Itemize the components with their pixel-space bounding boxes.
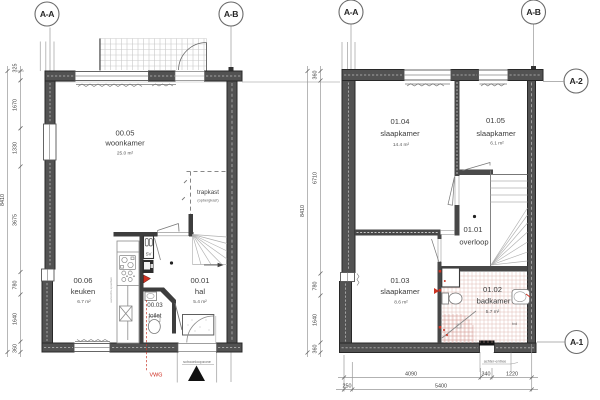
svg-text:aanrecht+spoelbak: aanrecht+spoelbak [109, 277, 113, 303]
svg-text:1640: 1640 [13, 313, 19, 325]
svg-text:360: 360 [13, 344, 19, 353]
svg-text:slaapkamer: slaapkamer [476, 129, 516, 138]
svg-text:8410: 8410 [300, 205, 306, 217]
svg-text:A-B: A-B [224, 9, 238, 19]
svg-text:780: 780 [313, 282, 319, 291]
svg-text:SV: SV [146, 252, 152, 257]
svg-text:00.06: 00.06 [73, 276, 92, 285]
svg-text:8410: 8410 [0, 194, 6, 206]
svg-text:1640: 1640 [313, 314, 319, 326]
svg-text:01.03: 01.03 [390, 276, 409, 285]
svg-text:tvd: tvd [512, 322, 517, 326]
svg-text:6.1 m²: 6.1 m² [490, 141, 504, 147]
svg-text:780: 780 [13, 281, 19, 290]
svg-text:A-2: A-2 [570, 76, 583, 86]
svg-text:00.03: 00.03 [147, 302, 163, 309]
svg-text:360: 360 [313, 71, 319, 80]
svg-text:A-A: A-A [40, 9, 54, 19]
svg-text:schoonloopzone: schoonloopzone [183, 360, 211, 364]
svg-text:14.4 m²: 14.4 m² [393, 142, 410, 148]
svg-text:(opbergkast): (opbergkast) [197, 199, 219, 203]
svg-text:340: 340 [482, 372, 491, 378]
svg-text:5.4 m²: 5.4 m² [193, 299, 207, 305]
svg-text:A-1: A-1 [570, 337, 583, 347]
svg-text:badkamer: badkamer [477, 297, 511, 306]
svg-text:8.6 m²: 8.6 m² [394, 300, 408, 306]
svg-text:01.01: 01.01 [463, 225, 482, 234]
svg-text:1330: 1330 [13, 142, 19, 154]
svg-text:trapkast: trapkast [197, 189, 219, 196]
svg-text:woonkamer: woonkamer [104, 139, 145, 148]
svg-text:keuken: keuken [71, 287, 96, 296]
svg-text:slaapkamer: slaapkamer [380, 287, 420, 296]
svg-text:toilet: toilet [148, 313, 161, 320]
svg-text:A-A: A-A [344, 7, 358, 17]
svg-text:1220: 1220 [506, 372, 518, 378]
svg-text:A-B: A-B [526, 7, 540, 17]
svg-text:250: 250 [343, 384, 352, 390]
svg-text:3675: 3675 [13, 214, 19, 226]
svg-text:00.01: 00.01 [190, 276, 209, 285]
svg-text:overloop: overloop [459, 238, 488, 247]
svg-text:01.02: 01.02 [483, 285, 502, 294]
svg-text:hal: hal [195, 287, 205, 296]
svg-text:00.05: 00.05 [115, 129, 134, 138]
svg-text:5400: 5400 [435, 384, 447, 390]
svg-text:325: 325 [13, 64, 19, 73]
svg-text:360: 360 [313, 345, 319, 354]
svg-text:achter-entree: achter-entree [484, 360, 507, 364]
svg-text:01.04: 01.04 [390, 117, 409, 126]
svg-text:slaapkamer: slaapkamer [380, 129, 420, 138]
svg-text:5.7 m²: 5.7 m² [486, 309, 500, 315]
svg-text:4090: 4090 [405, 372, 417, 378]
svg-text:6710: 6710 [313, 172, 319, 184]
svg-text:25.0 m²: 25.0 m² [117, 151, 134, 157]
svg-text:1670: 1670 [13, 99, 19, 111]
svg-text:6.7 m²: 6.7 m² [77, 299, 91, 305]
svg-text:01.05: 01.05 [486, 116, 505, 125]
svg-text:VWG: VWG [150, 373, 163, 379]
